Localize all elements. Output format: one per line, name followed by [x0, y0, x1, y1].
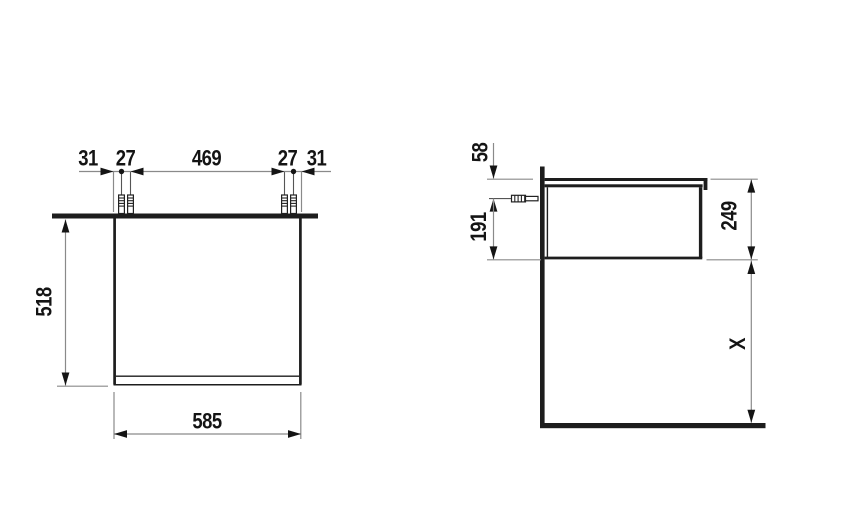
front-screw-2	[128, 172, 134, 214]
arrowhead-left	[114, 430, 127, 438]
dim-label-top-to-mount: 58	[469, 142, 493, 162]
arrowhead-right	[288, 430, 301, 438]
side-body-height-dimension: 249	[707, 179, 758, 260]
technical-drawing-page: 31 27 469 27 31 518 585	[0, 0, 868, 509]
front-countertop	[52, 214, 318, 219]
side-view: 58 191 249 X	[468, 142, 766, 428]
front-view: 31 27 469 27 31 518 585	[33, 147, 331, 439]
dim-label-height: 518	[33, 287, 57, 317]
side-wall-line	[540, 167, 545, 429]
screw-sleeve	[526, 196, 539, 200]
dim-label-width: 585	[192, 410, 222, 434]
side-floor-line	[540, 423, 766, 428]
front-height-dimension: 518	[33, 220, 108, 387]
side-screw	[489, 195, 538, 202]
arrowhead-down	[62, 373, 70, 386]
side-countertop-top-edge	[545, 178, 708, 181]
arrowhead-right	[101, 168, 114, 176]
dim-label-mount-to-bottom: 191	[468, 212, 492, 242]
side-countertop-front-nose	[704, 178, 708, 190]
arrowhead-down	[490, 246, 498, 259]
dim-label-floor-clearance: X	[727, 337, 751, 350]
dim-label-right-offset: 31	[307, 147, 327, 171]
front-screw-1	[119, 172, 125, 214]
dim-label-screw-span: 469	[192, 147, 222, 171]
arrowhead-down	[747, 410, 755, 423]
dim-label-left-offset: 31	[78, 147, 98, 171]
side-mount-to-bottom-dimension: 191	[468, 199, 541, 260]
arrowhead-down	[747, 246, 755, 259]
dim-label-right-screw-spacing: 27	[278, 147, 298, 171]
arrowhead-up	[62, 220, 70, 233]
technical-drawing-canvas: 31 27 469 27 31 518 585	[0, 0, 868, 509]
arrowhead-down	[490, 166, 498, 179]
arrowhead-up	[747, 261, 755, 274]
front-screw-4	[291, 172, 297, 214]
front-width-dimension: 585	[114, 392, 301, 439]
dim-label-body-height: 249	[718, 201, 742, 231]
side-countertop-bottom-edge	[545, 184, 703, 187]
side-floor-clearance-dimension: X	[727, 261, 756, 423]
dim-label-left-screw-spacing: 27	[116, 147, 136, 171]
front-screw-3	[282, 172, 288, 214]
arrowhead-up	[747, 180, 755, 193]
